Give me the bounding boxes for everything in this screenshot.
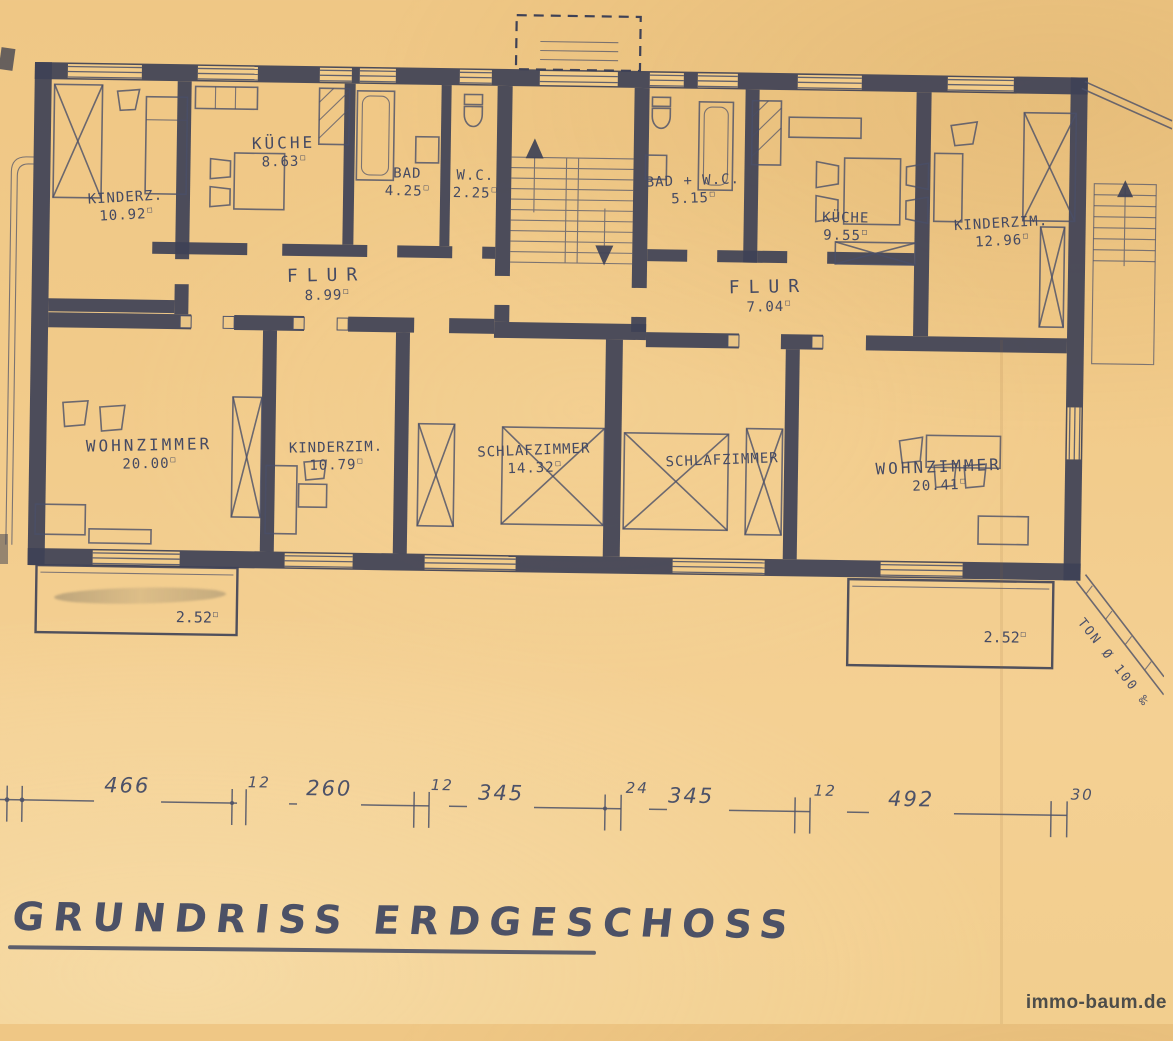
balcony-left-area-label: 2.52□ bbox=[176, 608, 218, 627]
room-label-schlafzimmer-1: SCHLAFZIMMER 14.32□ bbox=[477, 441, 591, 479]
room-label-kueche-left: KÜCHE 8.63□ bbox=[252, 133, 316, 171]
dim-12c: 12 bbox=[814, 782, 837, 800]
balcony-right-outline bbox=[847, 579, 1053, 668]
room-label-bad-left: BAD 4.25□ bbox=[385, 165, 430, 199]
paper-crease bbox=[1000, 340, 1003, 1024]
dim-345b: 345 bbox=[668, 783, 714, 808]
entrance-steps-icon bbox=[540, 41, 618, 60]
dim-466: 466 bbox=[104, 773, 150, 798]
watermark: immo-baum.de bbox=[1026, 992, 1167, 1014]
room-label-flur-left: FLUR 8.99□ bbox=[287, 264, 367, 304]
scan-artifact bbox=[0, 534, 8, 564]
room-label-flur-right: FLUR 7.04□ bbox=[729, 276, 809, 316]
room-label-wc-left: W.C. 2.25□ bbox=[453, 167, 498, 201]
staircase-icon bbox=[510, 157, 634, 264]
room-label-wohnzimmer-left: WOHNZIMMER 20.00□ bbox=[86, 434, 213, 473]
room-label-bad-wc-right: BAD + W.C. 5.15□ bbox=[645, 171, 740, 208]
dim-492: 492 bbox=[888, 787, 934, 812]
balcony-right-area-label: 2.52□ bbox=[983, 628, 1025, 647]
canopy-dashed-outline bbox=[516, 15, 641, 71]
room-label-wohnzimmer-right: WOHNZIMMER 20.41□ bbox=[875, 455, 1003, 496]
room-label-kueche-right: KÜCHE 9.55□ bbox=[822, 210, 870, 244]
room-label-kinderzimmer-right: KINDERZIM. 12.96□ bbox=[954, 213, 1050, 252]
stair-down-arrow-icon bbox=[595, 245, 613, 265]
dim-345a: 345 bbox=[478, 781, 524, 806]
external-stair-icon bbox=[1078, 82, 1173, 365]
entry-door-opening bbox=[540, 71, 618, 86]
dim-30: 30 bbox=[1071, 785, 1094, 803]
dim-12a: 12 bbox=[248, 773, 271, 791]
room-label-kinderzimmer-bottom: KINDERZIM. 10.79□ bbox=[289, 439, 384, 475]
floor-plan-drawing: .wall{fill:#3e4156;opacity:.92;} .win{fi… bbox=[0, 0, 1173, 1041]
floor-plan: .wall{fill:#3e4156;opacity:.92;} .win{fi… bbox=[0, 0, 1173, 1041]
room-label-kinderzimmer-left: KINDERZ. 10.92□ bbox=[87, 187, 164, 225]
dim-12b: 12 bbox=[431, 776, 454, 794]
stair-up-arrow-icon bbox=[526, 138, 544, 158]
page-title: GRUNDRISS ERDGESCHOSS bbox=[10, 895, 799, 948]
dim-260: 260 bbox=[306, 776, 352, 801]
dim-24: 24 bbox=[626, 779, 649, 797]
